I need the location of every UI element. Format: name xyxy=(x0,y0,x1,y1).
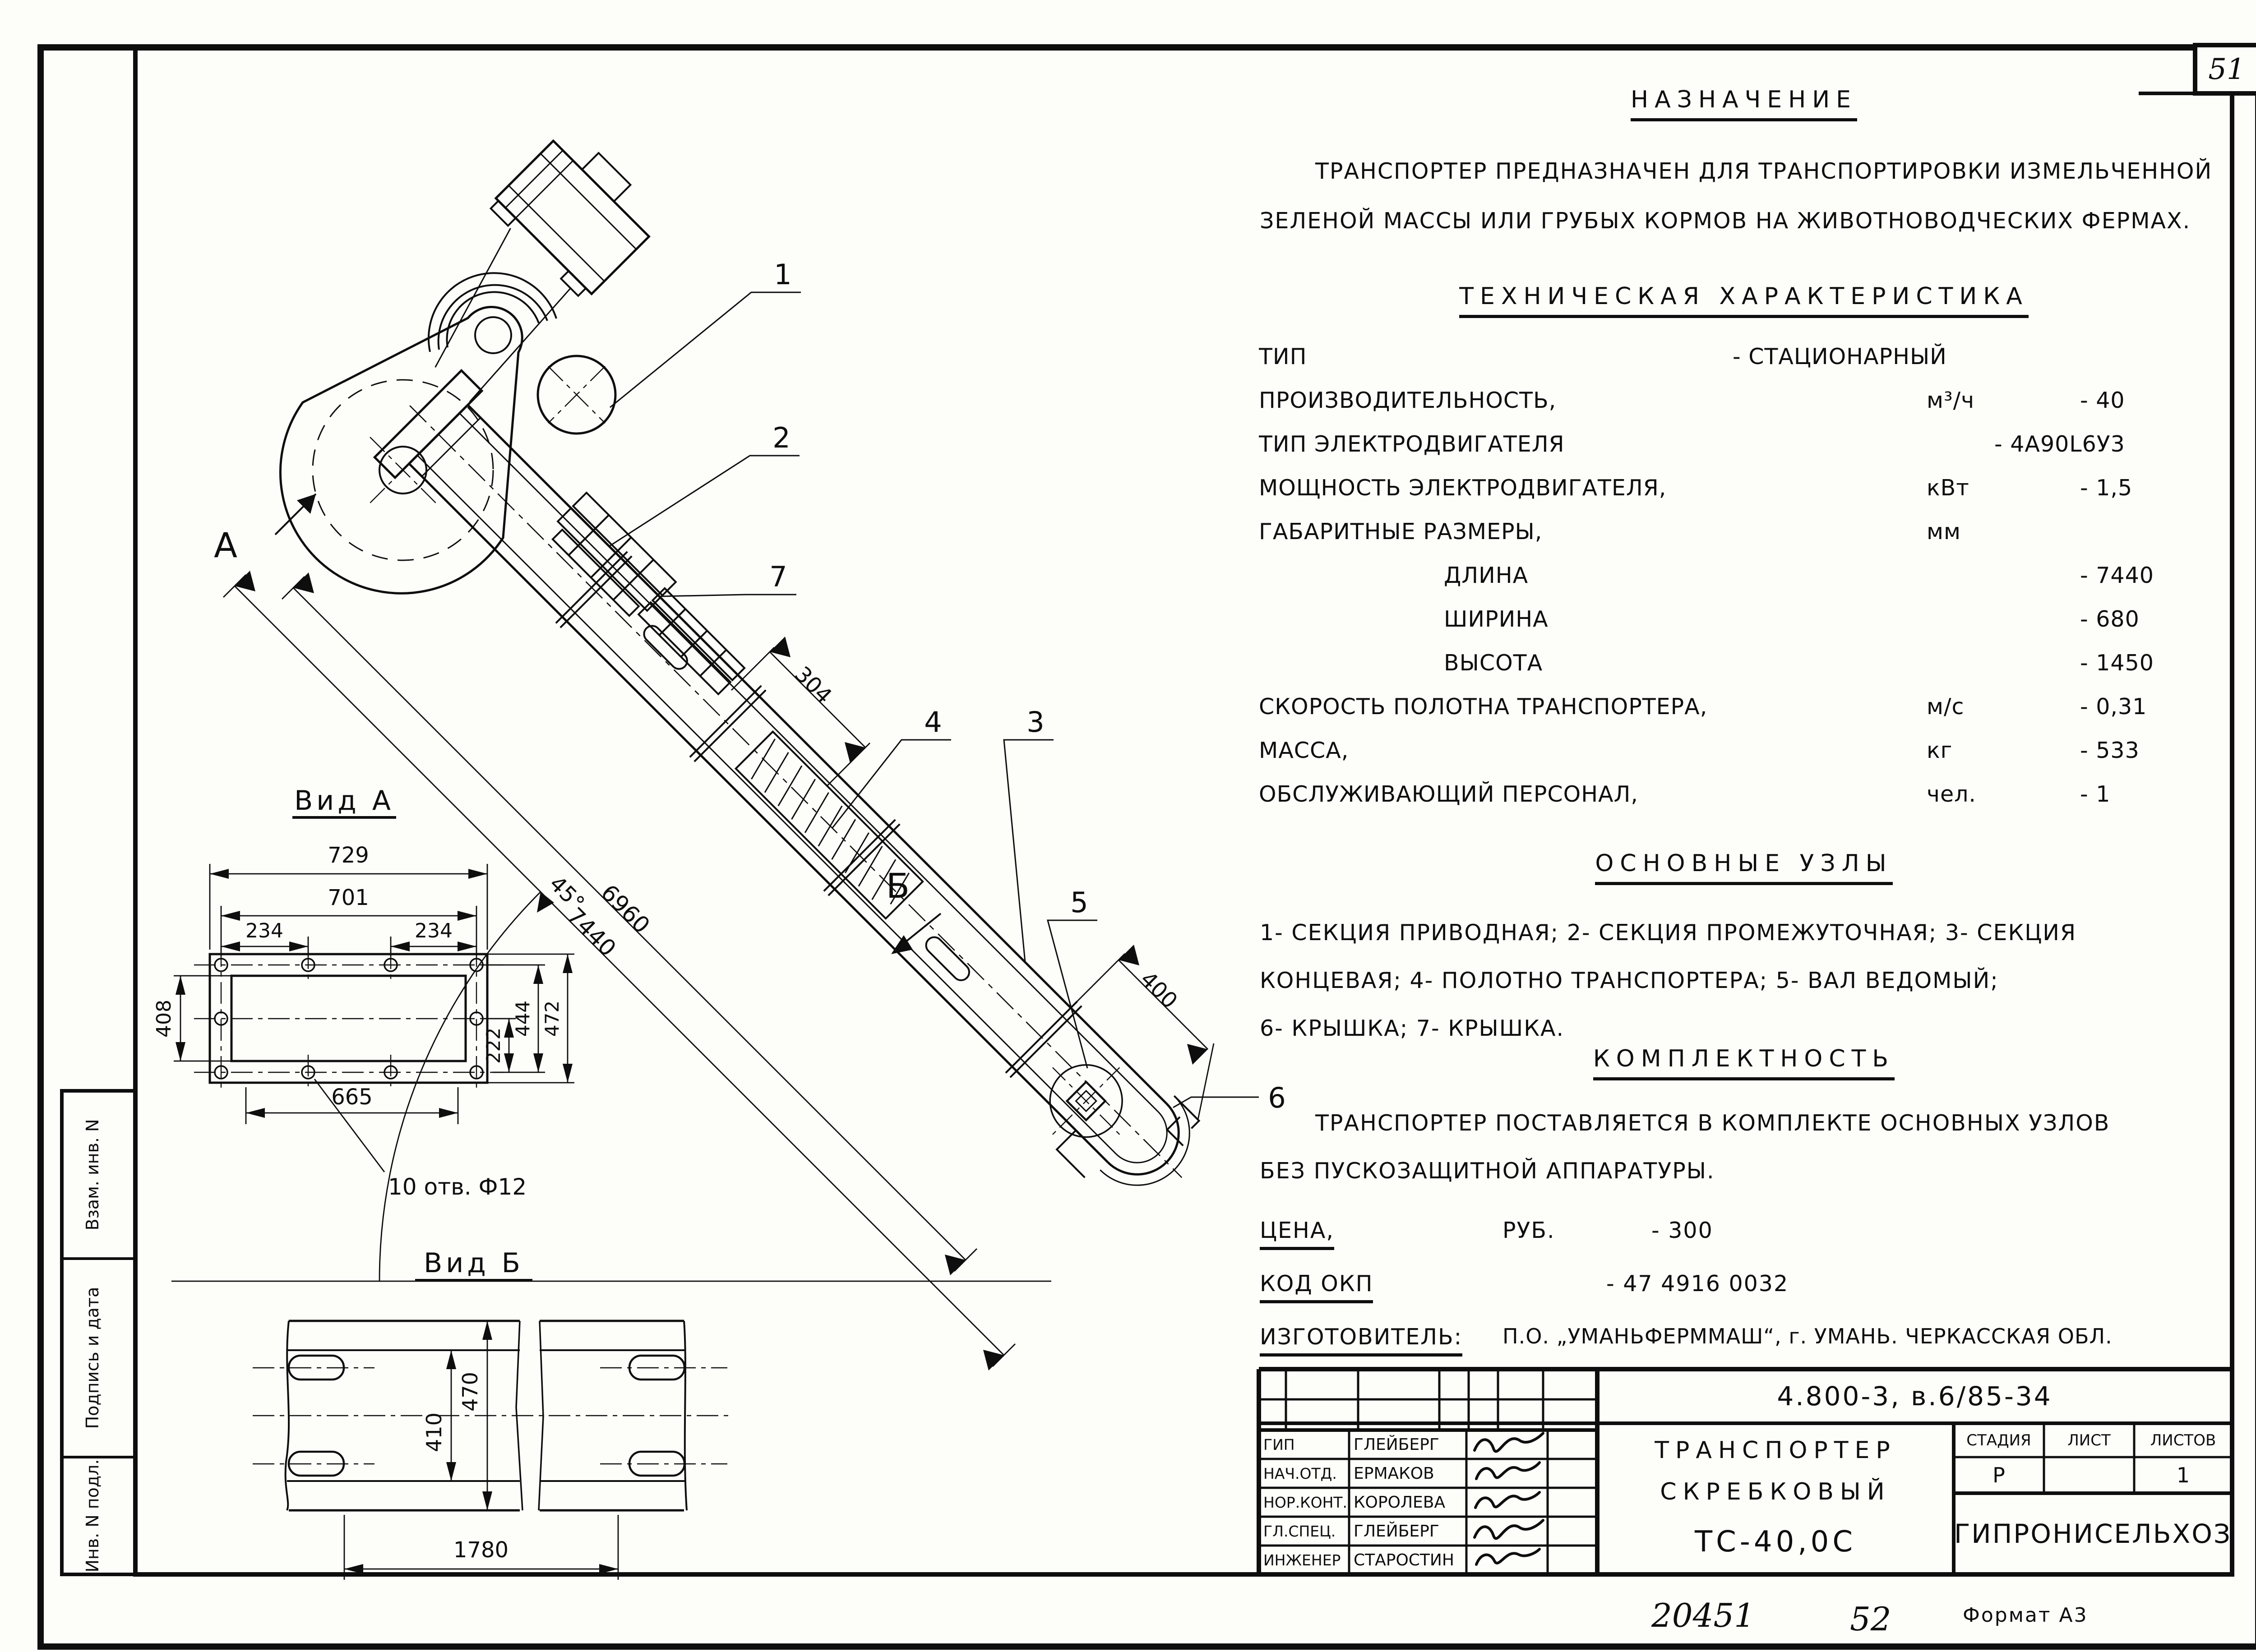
spec-row-width: ШИРИНА- 680 xyxy=(1259,606,2229,650)
col-sheet: ЛИСТ xyxy=(2044,1423,2134,1457)
view-a-title: Вид А xyxy=(294,785,394,817)
callout-5: 5 xyxy=(1070,886,1088,919)
units-title: ОСНОВНЫЕ УЗЛЫ xyxy=(1595,850,1892,885)
units-line-2: КОНЦЕВАЯ; 4- ПОЛОТНО ТРАНСПОРТЕРА; 5- ВА… xyxy=(1260,968,2234,1016)
staff-role-4: ГЛ.СПЕЦ. xyxy=(1263,1517,1349,1546)
staff-role-2: НАЧ.ОТД. xyxy=(1263,1459,1349,1488)
price-label: ЦЕНА, xyxy=(1260,1218,1334,1250)
doc-number: 4.800-3, в.6/85-34 xyxy=(1597,1369,2232,1423)
completeness-line-2: БЕЗ ПУСКОЗАЩИТНОЙ АППАРАТУРЫ. xyxy=(1260,1158,1715,1184)
completeness-section: КОМПЛЕКТНОСТЬ xyxy=(1259,1046,2229,1080)
units-legend: 1- СЕКЦИЯ ПРИВОДНАЯ; 2- СЕКЦИЯ ПРОМЕЖУТО… xyxy=(1260,920,2234,1064)
sheets-value: 1 xyxy=(2134,1457,2232,1493)
okp-label: КОД ОКП xyxy=(1260,1271,1373,1303)
purpose-section: НАЗНАЧЕНИЕ xyxy=(1259,87,2229,121)
dim-304: 304 xyxy=(790,661,837,708)
staff-name-1: ГЛЕЙБЕРГ xyxy=(1354,1430,1464,1459)
spec-row-type: ТИП- СТАЦИОНАРНЫЙ xyxy=(1259,344,2229,388)
col-sheets: ЛИСТОВ xyxy=(2134,1423,2232,1457)
dim-408: 408 xyxy=(153,1000,176,1038)
side-stamp-label-bottom: Инв. N подл. xyxy=(83,1459,102,1572)
view-b-title: Вид Б xyxy=(424,1247,524,1279)
maker-row: ИЗГОТОВИТЕЛЬ: xyxy=(1260,1324,1462,1350)
dim-470: 470 xyxy=(458,1372,482,1412)
price-value: - 300 xyxy=(1651,1218,1713,1243)
spec-row-mass: МАССА,кг- 533 xyxy=(1259,738,2229,781)
callout-1: 1 xyxy=(774,258,791,291)
spec-row-motor-type: ТИП ЭЛЕКТРОДВИГАТЕЛЯ- 4А90L6У3 xyxy=(1259,431,2229,475)
view-direction-arrows xyxy=(275,494,941,954)
specs-table: ТИП- СТАЦИОНАРНЫЙ ПРОИЗВОДИТЕЛЬНОСТЬ,м³/… xyxy=(1259,344,2229,825)
page-number: 51 xyxy=(2208,53,2245,86)
spec-row-capacity: ПРОИЗВОДИТЕЛЬНОСТЬ,м³/ч- 40 xyxy=(1259,388,2229,431)
maker-value: П.О. „УМАНЬФЕРММАШ“, г. УМАНЬ. ЧЕРКАССКА… xyxy=(1502,1324,2113,1348)
price-unit: РУБ. xyxy=(1502,1218,1555,1243)
holes-note: 10 отв. Ф12 xyxy=(388,1174,527,1200)
specs-title: ТЕХНИЧЕСКАЯ ХАРАКТЕРИСТИКА xyxy=(1459,283,2029,318)
callout-2: 2 xyxy=(772,421,790,454)
units-line-1: 1- СЕКЦИЯ ПРИВОДНАЯ; 2- СЕКЦИЯ ПРОМЕЖУТО… xyxy=(1260,920,2234,968)
dim-234-left: 234 xyxy=(245,919,283,942)
callout-3: 3 xyxy=(1026,706,1044,738)
purpose-title: НАЗНАЧЕНИЕ xyxy=(1631,87,1857,121)
footer-order-number: 20451 xyxy=(1651,1597,1755,1634)
staff-role-3: НОР.КОНТ. xyxy=(1263,1488,1349,1517)
staff-name-5: СТАРОСТИН xyxy=(1354,1546,1464,1574)
product-title-line-3: ТС-40,0С xyxy=(1597,1519,1954,1564)
spec-row-power: МОЩНОСТЬ ЭЛЕКТРОДВИГАТЕЛЯ,кВт- 1,5 xyxy=(1259,475,2229,519)
units-section: ОСНОВНЫЕ УЗЛЫ xyxy=(1259,850,2229,885)
stage-value: Р xyxy=(1954,1457,2044,1493)
main-dimensions xyxy=(171,571,1214,1371)
conveyor-main-view xyxy=(171,124,1403,1371)
dim-701: 701 xyxy=(328,885,369,910)
staff-role-5: ИНЖЕНЕР xyxy=(1263,1546,1349,1574)
dim-234-right: 234 xyxy=(415,919,453,942)
callout-7: 7 xyxy=(769,560,787,593)
col-stage: СТАДИЯ xyxy=(1954,1423,2044,1457)
product-title-line-2: СКРЕБКОВЫЙ xyxy=(1597,1472,1954,1512)
staff-name-4: ГЛЕЙБЕРГ xyxy=(1354,1517,1464,1546)
spec-row-height: ВЫСОТА- 1450 xyxy=(1259,650,2229,694)
staff-role-1: ГИП xyxy=(1263,1430,1349,1459)
sheet-value xyxy=(2044,1457,2134,1493)
spec-row-personnel: ОБСЛУЖИВАЮЩИЙ ПЕРСОНАЛ,чел.- 1 xyxy=(1259,781,2229,825)
staff-name-3: КОРОЛЕВА xyxy=(1354,1488,1464,1517)
view-label-b: Б xyxy=(886,866,910,906)
dim-400: 400 xyxy=(1135,966,1182,1013)
callout-4: 4 xyxy=(924,706,942,738)
staff-name-2: ЕРМАКОВ xyxy=(1354,1459,1464,1488)
footer-format: Формат А3 xyxy=(1963,1604,2088,1627)
maker-label: ИЗГОТОВИТЕЛЬ: xyxy=(1260,1324,1462,1357)
footer-page-alt: 52 xyxy=(1850,1601,1891,1638)
completeness-line-1: ТРАНСПОРТЕР ПОСТАВЛЯЕТСЯ В КОМПЛЕКТЕ ОСН… xyxy=(1315,1111,2110,1136)
dim-444: 444 xyxy=(512,1001,534,1037)
dim-472: 472 xyxy=(541,1001,563,1037)
side-stamp-label-top: Взам. инв. N xyxy=(83,1119,102,1231)
dim-410: 410 xyxy=(422,1412,446,1452)
drawing-sheet: 51 Взам. инв. N Подпись и дата Инв. N по… xyxy=(0,0,2256,1652)
okp-value: - 47 4916 0032 xyxy=(1606,1271,1789,1297)
dim-729: 729 xyxy=(328,843,369,868)
callout-6: 6 xyxy=(1268,1081,1285,1114)
product-title-line-1: ТРАНСПОРТЕР xyxy=(1597,1430,1954,1471)
drive-section xyxy=(280,273,615,593)
side-stamp-label-mid: Подпись и дата xyxy=(83,1287,102,1429)
completeness-title: КОМПЛЕКТНОСТЬ xyxy=(1593,1046,1895,1080)
dim-665: 665 xyxy=(331,1084,373,1110)
view-a xyxy=(174,817,574,1172)
organization: ГИПРОНИСЕЛЬХОЗ xyxy=(1954,1493,2232,1574)
spec-row-speed: СКОРОСТЬ ПОЛОТНА ТРАНСПОРТЕРА,м/с- 0,31 xyxy=(1259,694,2229,738)
dim-222: 222 xyxy=(482,1028,504,1064)
view-b xyxy=(253,1280,731,1580)
dim-1780: 1780 xyxy=(453,1537,509,1563)
spec-row-length: ДЛИНА- 7440 xyxy=(1259,563,2229,606)
price-row: ЦЕНА, xyxy=(1260,1218,1334,1243)
okp-row: КОД ОКП xyxy=(1260,1271,1373,1297)
specs-section: ТЕХНИЧЕСКАЯ ХАРАКТЕРИСТИКА xyxy=(1259,283,2229,318)
purpose-line-1: ТРАНСПОРТЕР ПРЕДНАЗНАЧЕН ДЛЯ ТРАНСПОРТИР… xyxy=(1315,159,2212,184)
view-label-a: А xyxy=(214,525,237,565)
spec-row-overall: ГАБАРИТНЫЕ РАЗМЕРЫ,мм xyxy=(1259,519,2229,563)
purpose-line-2: ЗЕЛЕНОЙ МАССЫ ИЛИ ГРУБЫХ КОРМОВ НА ЖИВОТ… xyxy=(1260,208,2191,234)
